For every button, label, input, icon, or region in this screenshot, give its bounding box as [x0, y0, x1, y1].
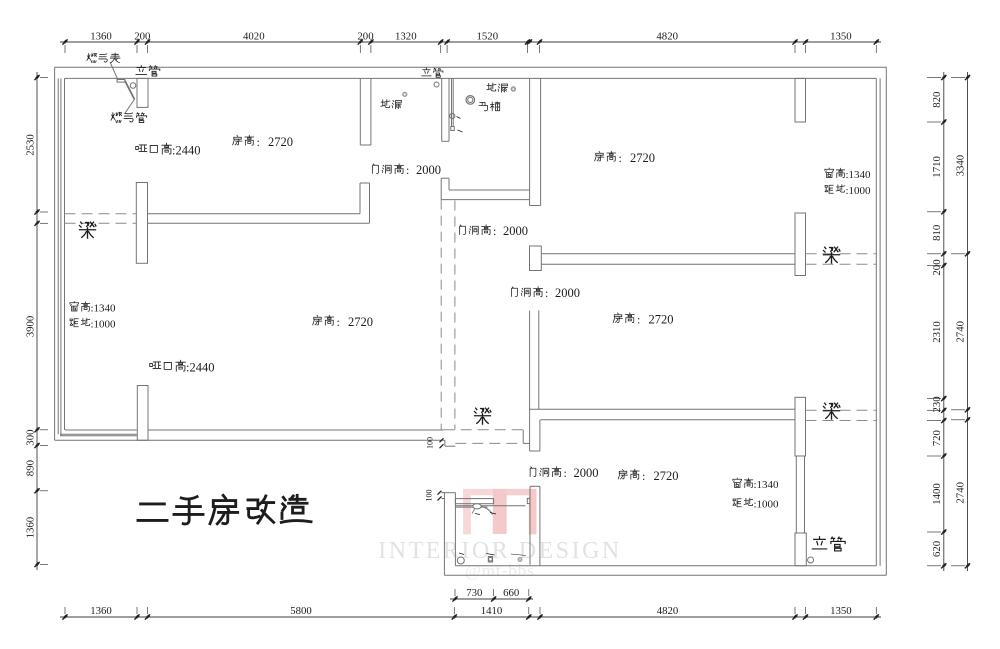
- svg-text::1000: :1000: [91, 319, 117, 331]
- svg-text:1320: 1320: [395, 31, 417, 43]
- svg-text::: :: [564, 466, 567, 480]
- svg-text:100: 100: [426, 437, 435, 449]
- svg-text:2740: 2740: [955, 321, 967, 343]
- svg-text:100: 100: [425, 490, 434, 502]
- svg-text:2000: 2000: [574, 466, 599, 480]
- svg-text:4020: 4020: [243, 31, 265, 43]
- svg-text:2720: 2720: [654, 469, 679, 483]
- svg-text::1340: :1340: [91, 303, 117, 315]
- svg-text:200: 200: [134, 31, 150, 43]
- svg-text:4820: 4820: [657, 605, 679, 617]
- svg-text::: :: [257, 135, 260, 149]
- svg-text:200: 200: [931, 259, 943, 275]
- svg-text::: :: [619, 151, 622, 165]
- svg-text:2310: 2310: [931, 321, 943, 343]
- svg-text:300: 300: [25, 429, 37, 445]
- svg-text::1340: :1340: [754, 479, 780, 491]
- svg-text:2720: 2720: [348, 315, 373, 329]
- svg-text:1360: 1360: [90, 31, 112, 43]
- svg-text:1520: 1520: [477, 31, 499, 43]
- svg-text:1350: 1350: [830, 605, 852, 617]
- svg-text:2000: 2000: [555, 286, 580, 300]
- svg-text:230: 230: [931, 396, 943, 412]
- svg-text:1360: 1360: [90, 605, 112, 617]
- svg-text:1360: 1360: [25, 517, 37, 539]
- svg-text::2440: :2440: [172, 144, 200, 158]
- svg-text:2000: 2000: [416, 163, 441, 177]
- svg-text:2000: 2000: [503, 224, 528, 238]
- svg-text::: :: [545, 286, 548, 300]
- svg-text:3900: 3900: [25, 316, 37, 338]
- svg-text::: :: [337, 315, 340, 329]
- svg-text::2440: :2440: [186, 361, 214, 375]
- svg-text:660: 660: [503, 587, 519, 599]
- svg-text:1350: 1350: [830, 31, 852, 43]
- svg-text:2530: 2530: [25, 134, 37, 156]
- svg-text::: :: [406, 163, 409, 177]
- svg-text:200: 200: [357, 31, 373, 43]
- svg-text:2720: 2720: [268, 135, 293, 149]
- svg-text:810: 810: [931, 225, 943, 241]
- svg-text:3340: 3340: [955, 155, 967, 177]
- svg-text::: :: [637, 313, 640, 327]
- svg-text::1000: :1000: [754, 499, 780, 511]
- svg-text:4820: 4820: [656, 31, 678, 43]
- svg-text:@mt-bbs: @mt-bbs: [465, 561, 535, 580]
- svg-text:620: 620: [931, 541, 943, 557]
- svg-text:2720: 2720: [630, 151, 655, 165]
- svg-text::: :: [642, 469, 645, 483]
- svg-text:1710: 1710: [931, 156, 943, 178]
- svg-text:1410: 1410: [481, 605, 503, 617]
- svg-text:2740: 2740: [955, 482, 967, 504]
- svg-text:5800: 5800: [290, 605, 312, 617]
- svg-text::: :: [493, 224, 496, 238]
- svg-text::1000: :1000: [846, 185, 872, 197]
- svg-text::1340: :1340: [846, 169, 872, 181]
- svg-text:1400: 1400: [931, 483, 943, 505]
- svg-text:890: 890: [25, 460, 37, 476]
- svg-text:720: 720: [931, 430, 943, 446]
- svg-text:730: 730: [466, 587, 482, 599]
- svg-text:820: 820: [931, 92, 943, 108]
- svg-text:2720: 2720: [649, 313, 674, 327]
